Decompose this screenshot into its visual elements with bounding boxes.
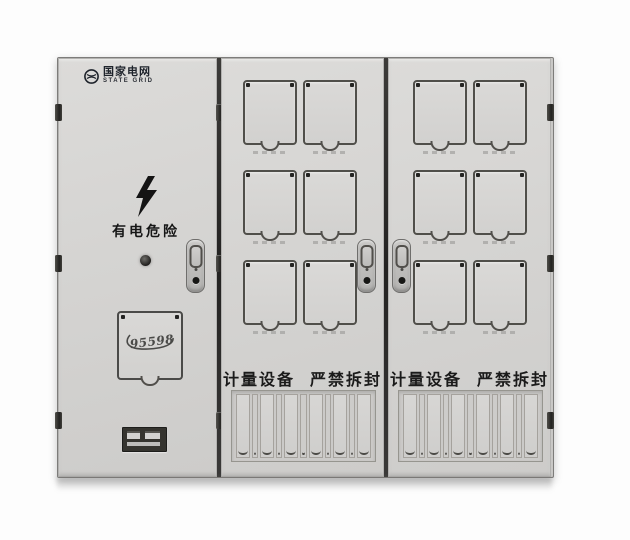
embossed-code-mark <box>423 241 457 244</box>
lightning-bolt-icon <box>134 176 158 218</box>
cable-slot <box>309 394 323 458</box>
meter-cell <box>413 260 467 338</box>
cable-slot <box>500 394 514 458</box>
screw-icon <box>460 263 464 267</box>
slot-rib <box>300 394 306 458</box>
keyhole-icon <box>363 277 370 284</box>
brand-name-en: STATE GRID <box>103 78 153 85</box>
seal-warning-label: 计量设备严禁拆封 <box>221 366 384 390</box>
hinge <box>547 104 554 121</box>
screw-icon <box>350 83 354 87</box>
meter-window <box>473 170 527 235</box>
screw-icon <box>350 263 354 267</box>
seal-notch <box>491 141 510 151</box>
lock-pin-icon <box>194 268 197 271</box>
meter-cell <box>413 170 467 248</box>
lock-pin-icon <box>365 268 368 271</box>
keyhole-icon <box>398 277 405 284</box>
knockout-hole <box>140 255 151 266</box>
seal-warning-b: 严禁拆封 <box>310 372 382 389</box>
slot-rib <box>516 394 522 458</box>
danger-label: 有电危险 <box>58 221 234 241</box>
cable-slot <box>427 394 441 458</box>
middle-door: 计量设备严禁拆封 <box>221 58 384 477</box>
screw-icon <box>520 263 524 267</box>
slot-rib <box>492 394 498 458</box>
cable-slot <box>236 394 250 458</box>
seal-warning-a: 计量设备 <box>223 372 295 389</box>
meter-cell <box>243 80 297 158</box>
slot-rib <box>276 394 282 458</box>
rating-plate-label <box>127 431 140 439</box>
lock-handle-icon <box>360 245 373 268</box>
screw-icon <box>306 173 310 177</box>
meter-window <box>243 80 297 145</box>
middle-door-lock <box>357 239 376 293</box>
meter-window <box>413 80 467 145</box>
seal-notch <box>321 231 340 241</box>
screw-icon <box>460 173 464 177</box>
screw-icon <box>175 315 179 319</box>
embossed-code-mark <box>423 331 457 334</box>
slot-rib <box>252 394 258 458</box>
meter-window <box>413 170 467 235</box>
embossed-code-mark <box>253 151 287 154</box>
seal-notch <box>261 321 280 331</box>
embossed-code-mark <box>253 331 287 334</box>
right-door: 计量设备严禁拆封 <box>388 58 551 477</box>
seal-warning-b: 严禁拆封 <box>477 372 549 389</box>
screw-icon <box>520 83 524 87</box>
seal-notch <box>261 231 280 241</box>
embossed-code-mark <box>483 331 517 334</box>
screw-icon <box>350 173 354 177</box>
cable-slot <box>451 394 465 458</box>
slot-rib <box>349 394 355 458</box>
seal-notch <box>431 231 450 241</box>
screw-icon <box>460 83 464 87</box>
seal-warning-label: 计量设备严禁拆封 <box>388 366 551 390</box>
cable-slot-panel <box>231 390 376 462</box>
meter-cell <box>303 170 357 248</box>
seal-notch <box>141 376 160 386</box>
meter-window-grid <box>413 80 527 338</box>
seal-notch <box>321 141 340 151</box>
state-grid-logo: 国家电网 STATE GRID <box>84 67 153 85</box>
screw-icon <box>246 263 250 267</box>
lock-pin-icon <box>400 268 403 271</box>
embossed-code-mark <box>313 331 347 334</box>
meter-window <box>473 80 527 145</box>
slot-rib <box>467 394 473 458</box>
meter-cabinet: 国家电网 STATE GRID 有电危险 95598 <box>57 57 554 478</box>
screw-icon <box>416 83 420 87</box>
embossed-code-mark <box>423 151 457 154</box>
screw-icon <box>290 83 294 87</box>
screw-icon <box>416 173 420 177</box>
hinge <box>547 412 554 429</box>
rating-plate-strip <box>127 442 160 446</box>
seal-notch <box>491 321 510 331</box>
embossed-code-mark <box>483 151 517 154</box>
slot-rib <box>325 394 331 458</box>
brand-text: 国家电网 STATE GRID <box>103 67 153 85</box>
meter-cell <box>473 260 527 338</box>
screw-icon <box>476 263 480 267</box>
slot-rib <box>419 394 425 458</box>
rating-plate-label <box>145 431 160 439</box>
cable-slot <box>524 394 538 458</box>
meter-cell <box>303 260 357 338</box>
seal-notch <box>491 231 510 241</box>
cable-slot <box>333 394 347 458</box>
meter-window <box>413 260 467 325</box>
right-door-lock <box>392 239 411 293</box>
embossed-code-mark <box>483 241 517 244</box>
embossed-code-mark <box>313 241 347 244</box>
screw-icon <box>290 263 294 267</box>
seal-notch <box>431 321 450 331</box>
lock-handle-icon <box>189 245 202 268</box>
meter-window-grid <box>243 80 357 338</box>
hotline-logo: 95598 <box>121 329 177 357</box>
brand-name-cn: 国家电网 <box>103 67 153 78</box>
slot-rib <box>443 394 449 458</box>
screw-icon <box>306 263 310 267</box>
left-door: 国家电网 STATE GRID 有电危险 95598 <box>58 58 217 477</box>
meter-window <box>303 170 357 235</box>
rating-plate <box>122 427 167 452</box>
meter-cell <box>243 170 297 248</box>
meter-window <box>303 260 357 325</box>
seal-notch <box>261 141 280 151</box>
hinge <box>55 412 62 429</box>
meter-window <box>243 260 297 325</box>
hotline-number: 95598 <box>129 332 175 351</box>
screw-icon <box>306 83 310 87</box>
meter-window <box>473 260 527 325</box>
keyhole-icon <box>192 277 199 284</box>
meter-cell <box>413 80 467 158</box>
screw-icon <box>290 173 294 177</box>
screw-icon <box>246 83 250 87</box>
screw-icon <box>520 173 524 177</box>
screw-icon <box>246 173 250 177</box>
screw-icon <box>121 315 125 319</box>
hinge <box>547 255 554 272</box>
seal-notch <box>431 141 450 151</box>
screw-icon <box>416 263 420 267</box>
screw-icon <box>476 83 480 87</box>
cabinet-shadow <box>57 477 552 491</box>
cable-slot <box>260 394 274 458</box>
cable-slot-panel <box>398 390 543 462</box>
meter-window <box>303 80 357 145</box>
embossed-code-mark <box>253 241 287 244</box>
meter-cell <box>243 260 297 338</box>
meter-cell <box>303 80 357 158</box>
screw-icon <box>476 173 480 177</box>
meter-cabinet-photo: 国家电网 STATE GRID 有电危险 95598 <box>0 0 630 540</box>
embossed-code-mark <box>313 151 347 154</box>
meter-window <box>243 170 297 235</box>
hotline-plate: 95598 <box>117 311 183 380</box>
meter-cell <box>473 170 527 248</box>
cable-slot <box>357 394 371 458</box>
meter-cell <box>473 80 527 158</box>
cable-slot <box>403 394 417 458</box>
seal-notch <box>321 321 340 331</box>
hinge <box>55 104 62 121</box>
cable-slot <box>476 394 490 458</box>
state-grid-emblem-icon <box>84 69 99 84</box>
seal-warning-a: 计量设备 <box>390 372 462 389</box>
hinge <box>55 255 62 272</box>
left-door-lock <box>186 239 205 293</box>
lock-handle-icon <box>395 245 408 268</box>
cable-slot <box>284 394 298 458</box>
